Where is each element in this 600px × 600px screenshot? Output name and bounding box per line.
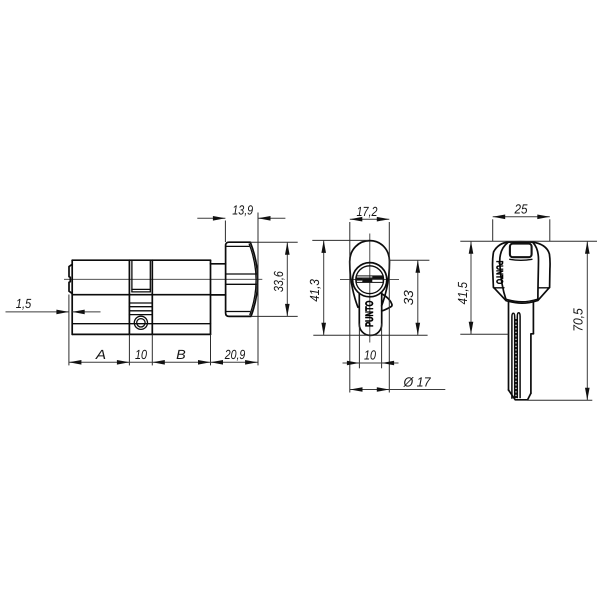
- svg-text:13,9: 13,9: [232, 203, 254, 218]
- svg-text:10: 10: [364, 347, 377, 362]
- svg-text:33: 33: [401, 290, 416, 306]
- svg-text:20,9: 20,9: [224, 347, 246, 362]
- svg-text:A: A: [95, 347, 107, 362]
- svg-text:10: 10: [135, 347, 148, 362]
- svg-text:25: 25: [514, 201, 528, 216]
- svg-text:B: B: [176, 347, 186, 362]
- svg-text:70,5: 70,5: [570, 308, 585, 332]
- svg-text:PUNTO: PUNTO: [364, 300, 376, 327]
- svg-text:17,2: 17,2: [357, 204, 379, 219]
- svg-text:1,5: 1,5: [16, 296, 32, 311]
- svg-text:41,3: 41,3: [307, 279, 322, 302]
- svg-text:41,5: 41,5: [455, 281, 470, 304]
- svg-text:PUNTO: PUNTO: [493, 261, 504, 285]
- svg-text:33,6: 33,6: [271, 271, 286, 293]
- svg-text:Ø 17: Ø 17: [403, 374, 432, 389]
